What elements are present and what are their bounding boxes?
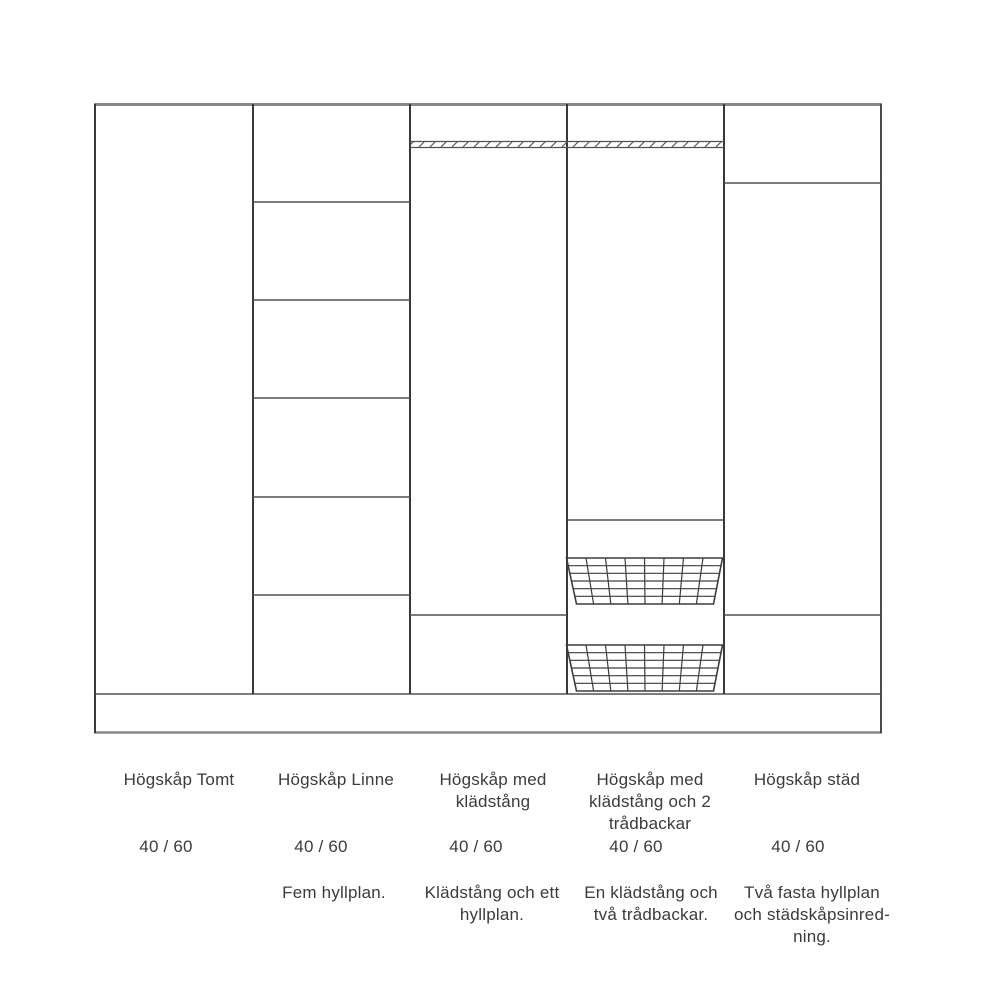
cabinet-name-label: Högskåp med klädstång (403, 769, 583, 813)
cabinet-name-label: Högskåp med klädstång och 2 trådbackar (560, 769, 740, 835)
wire-basket-bottom (567, 645, 723, 691)
clothes-rail (410, 142, 724, 148)
cabinet-name-label: Högskåp städ (717, 769, 897, 791)
cabinet-dividers (253, 104, 724, 694)
wardrobe-line-drawing (0, 0, 1000, 760)
cabinet-size-label: 40 / 60 (416, 836, 536, 858)
cabinet-size-label: 40 / 60 (576, 836, 696, 858)
wardrobe-diagram-page: Högskåp Tomt 40 / 60 Högskåp Linne 40 / … (0, 0, 1000, 1000)
cabinet-size-label: 40 / 60 (261, 836, 381, 858)
cabinet-stad-shelves (724, 183, 881, 615)
cabinet-linne-shelves (253, 202, 410, 595)
cabinet-description-label: Två fasta hyllplan och städskåpsinred- n… (712, 882, 912, 948)
cabinet-name-label: Högskåp Linne (246, 769, 426, 791)
wire-basket-top (567, 558, 723, 604)
cabinet-name-label: Högskåp Tomt (89, 769, 269, 791)
cabinet-size-label: 40 / 60 (738, 836, 858, 858)
cabinet-size-label: 40 / 60 (106, 836, 226, 858)
outer-frame (94, 104, 882, 733)
